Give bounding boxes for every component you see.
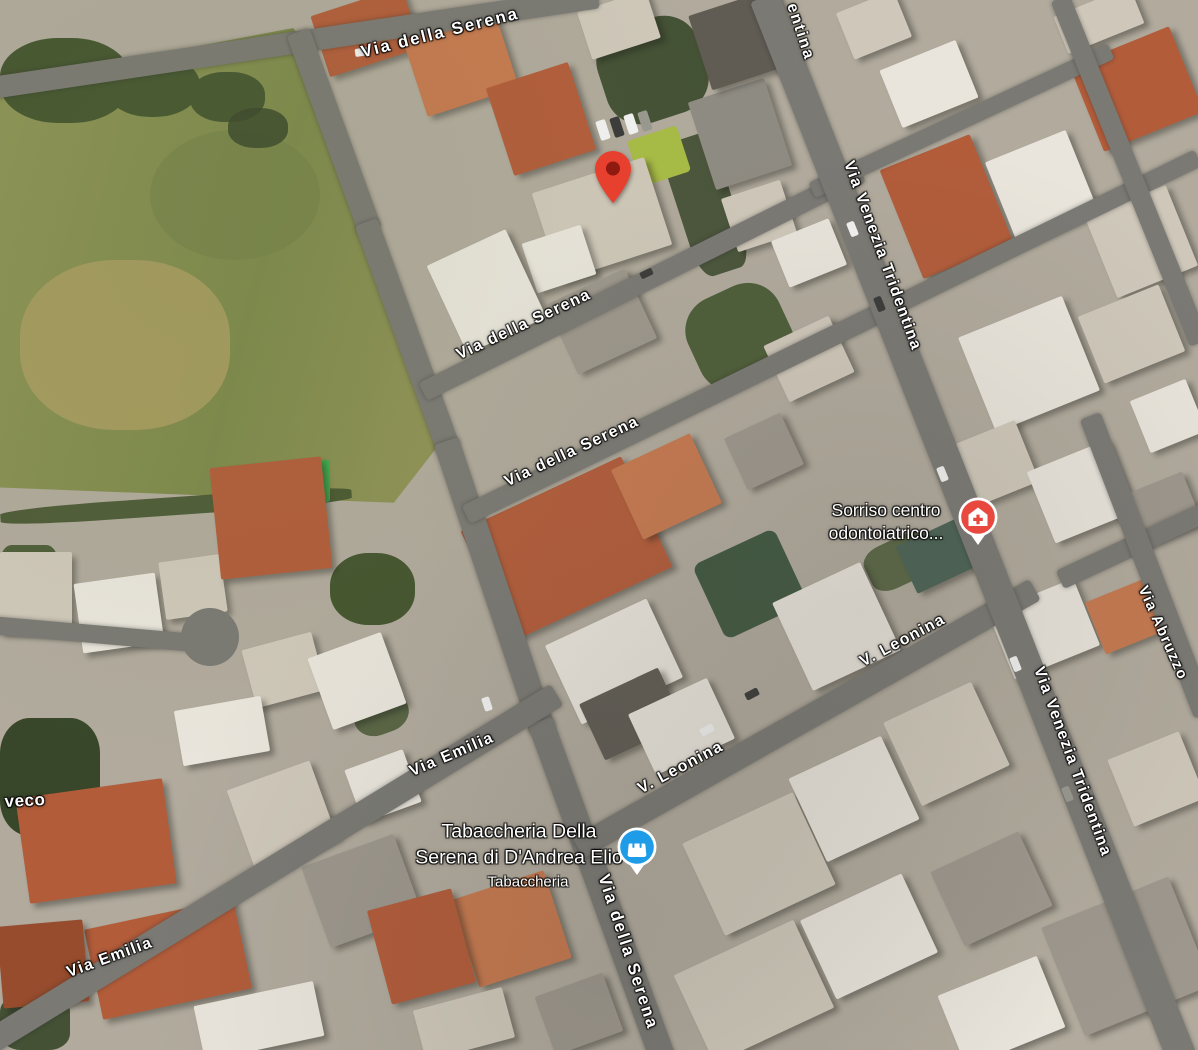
satellite-map[interactable]: Via della SerenaentinaVia Venezia Triden… xyxy=(0,0,1198,1050)
vegetation xyxy=(330,553,415,625)
map-pin[interactable] xyxy=(594,150,632,204)
building xyxy=(724,413,804,491)
shopping-bag-icon-svg xyxy=(616,826,658,876)
poi-label-line: Sorriso centro xyxy=(832,499,941,522)
building xyxy=(930,831,1053,946)
street-label: Via Venezia Tridentina xyxy=(1029,665,1115,860)
poi-label-sorriso[interactable]: Sorriso centro odontoiatrico... xyxy=(829,499,944,545)
car xyxy=(595,119,611,141)
poi-category-label: Tabaccheria xyxy=(488,874,569,891)
building xyxy=(836,0,912,60)
building xyxy=(209,456,332,579)
vegetation xyxy=(150,130,320,260)
building xyxy=(174,696,270,766)
building xyxy=(535,973,624,1050)
map-pin-svg xyxy=(594,150,632,204)
car xyxy=(181,608,239,666)
street-label: veco xyxy=(4,790,46,812)
shopping-bag-icon[interactable] xyxy=(616,826,658,876)
car xyxy=(744,687,760,700)
building xyxy=(1107,731,1198,827)
poi-label-line: Tabaccheria Della xyxy=(441,819,596,845)
building xyxy=(937,956,1065,1050)
vegetation xyxy=(20,260,230,430)
health-icon[interactable] xyxy=(957,496,999,546)
health-icon-svg xyxy=(957,496,999,546)
vegetation xyxy=(228,108,288,148)
car xyxy=(481,696,493,712)
building xyxy=(1078,284,1186,383)
poi-label-line: odontoiatrico... xyxy=(829,522,944,545)
building xyxy=(1130,379,1198,453)
poi-label-tabaccheria[interactable]: Tabaccheria Della Serena di D'Andrea Eli… xyxy=(415,819,623,870)
poi-label-line: Serena di D'Andrea Elio xyxy=(415,845,623,871)
building xyxy=(413,987,515,1050)
